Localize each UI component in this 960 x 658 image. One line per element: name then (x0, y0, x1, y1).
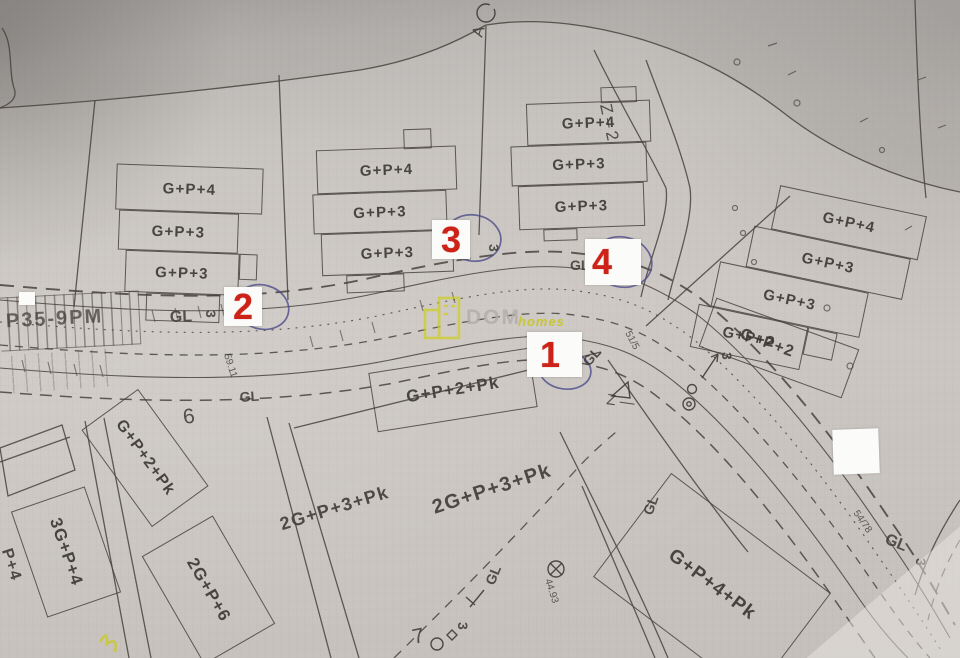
road-number: 44.93 (542, 578, 560, 606)
road-edge (267, 417, 331, 658)
building-label: G+P+4 (162, 180, 216, 199)
width-3-label: 3 (455, 622, 471, 630)
zone-z-label: Z — (605, 391, 635, 412)
watermark: DOM homes (422, 294, 562, 346)
marker-3[interactable]: 3 (432, 220, 470, 259)
arrow-icon (466, 590, 484, 607)
parcel-label-center-left: 2G+P+3+Pk (277, 482, 391, 535)
building-label: G+P+4 (359, 160, 413, 179)
width-3-label: 3 (913, 558, 929, 566)
building-label: G+P+4 (562, 113, 616, 132)
gl-label: GL (239, 388, 260, 405)
building-label: G+P+3 (155, 263, 209, 282)
building-tab (543, 228, 577, 241)
utility-circle-icon (431, 638, 443, 650)
scan-edge-line (0, 28, 15, 108)
building-tab (346, 273, 405, 293)
building-label: G+P+4 (821, 209, 877, 237)
yellow-mark (100, 635, 116, 652)
survey-a-label: A (469, 24, 488, 39)
building-label: G+P+3 (800, 249, 856, 277)
building-center: G+P+2+Pk (368, 348, 537, 433)
parcel-line (479, 26, 486, 235)
watermark-text-yellow: homes (518, 314, 565, 329)
building-label: 2G+P+6 (182, 554, 235, 625)
building-cluster-north: G+P+4 G+P+3 G+P+3 (500, 85, 663, 240)
building-step (239, 254, 258, 281)
blank-patch-right (832, 428, 880, 475)
gl-label: GL (482, 563, 504, 587)
building-label: G+P+3 (552, 155, 606, 174)
building-strip: G+P+3 (124, 250, 239, 296)
survey-point-icon (477, 4, 495, 22)
manhole-icon (548, 561, 564, 577)
building-strip: G+P+3 (510, 142, 647, 187)
building-label: G+P+3 (151, 222, 205, 241)
marker-2[interactable]: 2 (224, 287, 262, 326)
utility-circle-icon (683, 398, 695, 410)
building-cluster-mid: G+P+4 G+P+3 G+P+3 (305, 127, 463, 296)
marker-2-label: 2 (233, 289, 253, 325)
building-label: G+P+2+Pk (405, 373, 501, 407)
building-outline-partial (0, 437, 70, 462)
building-south: 2G+P+6 (142, 515, 276, 658)
building-label: G+P+3 (762, 286, 818, 314)
building-outline-partial (0, 425, 75, 496)
building-strip: G+P+4 (115, 163, 264, 214)
building-label: G+P+3 (353, 203, 407, 222)
road-number: 51/5 (622, 329, 641, 352)
road-edge (289, 423, 359, 658)
road-number: 59.11 (221, 353, 239, 380)
boundary-line (0, 25, 486, 108)
parcel-line (74, 100, 95, 307)
marker-4[interactable]: 4 (585, 239, 641, 285)
building-label: G+P+2 (737, 326, 796, 362)
building-strip: G+P+3 (518, 182, 645, 230)
marker-4-label: 4 (592, 244, 612, 280)
utility-circle-icon (688, 385, 697, 394)
parcel-label-center-big: 2G+P+3+Pk (429, 459, 554, 519)
building-edge-partial-label: P+4 (0, 546, 24, 583)
diamond-icon (447, 630, 457, 640)
building-southwest: 3G+P+4 (11, 486, 121, 617)
road-edge (915, 500, 960, 595)
building-label: G+P+4+Pk (664, 545, 760, 625)
road-number: 54/78 (851, 508, 875, 535)
building-label: G+P+3 (554, 197, 608, 216)
triangle-icon (612, 382, 630, 398)
building-west: G+P+2+Pk (81, 389, 208, 527)
gl-label: GL (883, 531, 910, 555)
boundary-line (915, 0, 926, 198)
building-label: 3G+P+4 (45, 515, 87, 588)
utility-circle-icon (687, 402, 691, 406)
watermark-text-gray: DOM (466, 306, 521, 330)
watermark-building-icon (422, 294, 464, 342)
point-7-label: 7 (410, 624, 426, 649)
building-strip: G+P+4 (316, 145, 457, 194)
building-tab (145, 293, 220, 324)
building-southeast: G+P+4+Pk (593, 473, 831, 658)
parking-label: P35-9PM (5, 305, 103, 333)
parcel-line (279, 75, 288, 300)
road-dashed-line (928, 540, 960, 620)
road-dashed-line (394, 432, 616, 658)
point-6-label: 6 (181, 405, 196, 429)
building-strip: G+P+3 (312, 190, 447, 235)
building-label: G+P+3 (360, 243, 414, 262)
building-label: G+P+2+Pk (111, 417, 178, 500)
parking-strip-row2 (0, 348, 119, 394)
site-plan-scan: P35-9PM G+P+4 G+P+3 G+P+3 G+P+4 G+P+3 G+… (0, 0, 960, 658)
building-strip: G+P+4 (526, 100, 651, 146)
gl-label: GL (579, 344, 604, 369)
width-3-label: 3 (486, 244, 502, 252)
blank-patch-topleft (19, 292, 35, 305)
marker-3-label: 3 (441, 222, 461, 258)
building-strip: G+P+3 (118, 210, 239, 254)
